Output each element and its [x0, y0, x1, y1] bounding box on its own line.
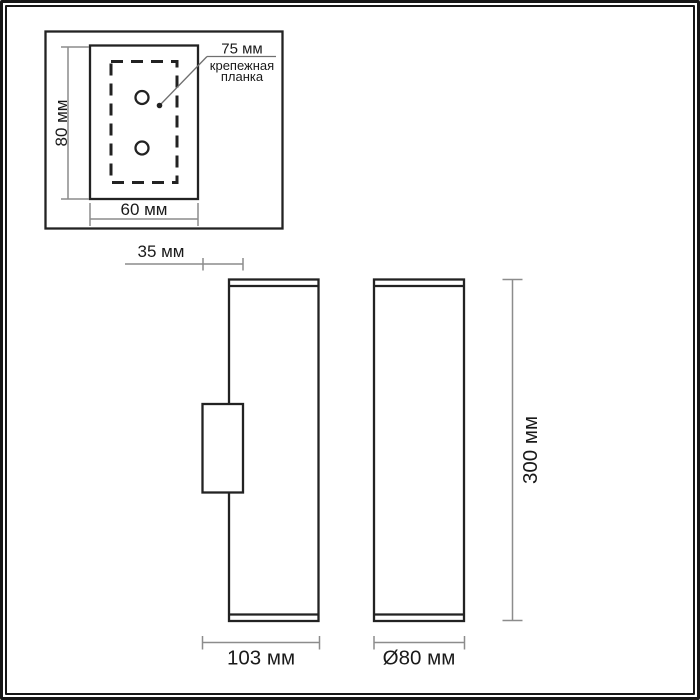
mounting-hole-bottom [136, 142, 149, 155]
detail-height-label: 80 мм [52, 99, 71, 146]
mounting-plate-detail-view: 80 мм 60 мм 75 мм крепежная планка [46, 32, 283, 229]
mounting-hole-top [136, 91, 149, 104]
body-diameter-label: Ø80 мм [383, 647, 456, 670]
technical-drawing: 80 мм 60 мм 75 мм крепежная планка 35 мм [0, 0, 700, 700]
total-depth-dimension: 103 мм [203, 636, 320, 670]
leader-dot [157, 103, 163, 109]
bracket-depth-label: 35 мм [137, 242, 184, 261]
mounting-plate-outline [90, 46, 198, 200]
body-height-dimension: 300 мм [503, 280, 543, 621]
detail-height-dimension: 80 мм [52, 47, 89, 199]
body-height-label: 300 мм [519, 416, 542, 484]
detail-width-label: 60 мм [120, 200, 167, 219]
lamp-side-view [203, 280, 319, 622]
lamp-body-front [374, 280, 464, 622]
body-diameter-dimension: Ø80 мм [374, 636, 465, 670]
plate-size-label: 75 мм [221, 41, 262, 58]
lamp-front-view [374, 280, 464, 622]
wall-bracket [203, 404, 244, 493]
detail-width-dimension: 60 мм [90, 200, 198, 226]
bracket-depth-dimension: 35 мм [125, 242, 243, 271]
lamp-dimension-drawing: { "colors": { "background": "#ffffff", "… [0, 0, 700, 700]
plate-caption-line2: планка [221, 69, 264, 84]
total-depth-label: 103 мм [227, 647, 295, 670]
